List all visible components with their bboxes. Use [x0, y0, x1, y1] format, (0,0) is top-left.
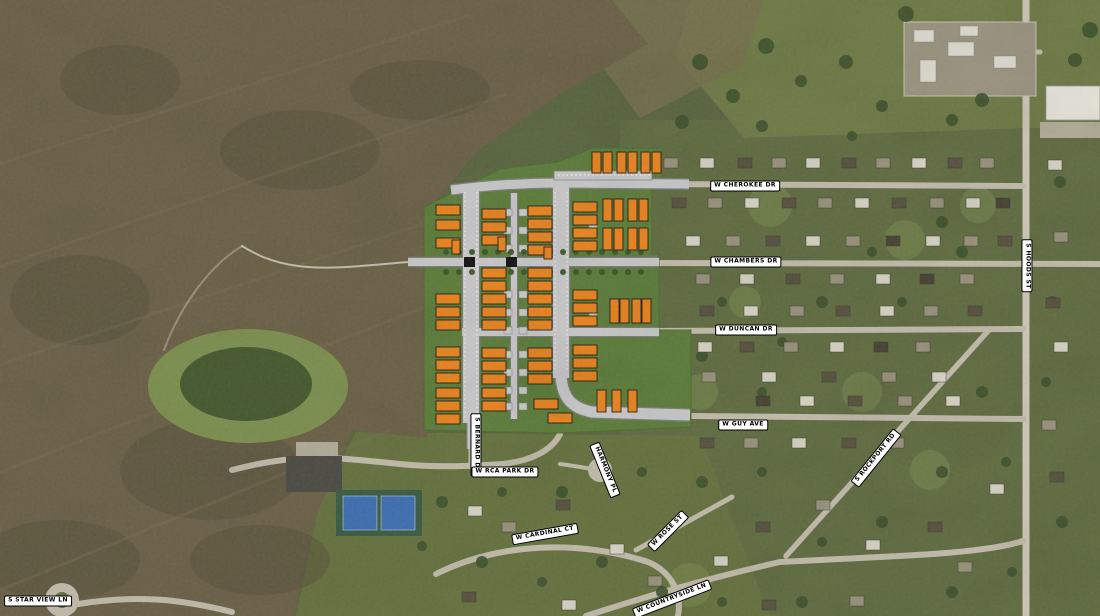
- street-label-w-cardinal-ct: W CARDINAL CT: [511, 523, 579, 545]
- street-label-w-rca-park-dr: W RCA PARK DR: [471, 467, 538, 478]
- street-label-s-star-view-ln: S STAR VIEW LN: [4, 596, 72, 607]
- street-label-s-rockport-rd: S ROCKPORT RD: [850, 428, 901, 488]
- street-label-w-duncan-dr: W DUNCAN DR: [715, 325, 777, 336]
- street-label-w-cherokee-dr: W CHEROKEE DR: [710, 181, 780, 192]
- street-label-w-rose-st: W ROSE ST: [647, 510, 689, 552]
- aerial-map: W CHEROKEE DRW CHAMBERS DRW DUNCAN DRW G…: [0, 0, 1100, 616]
- street-label-harmony-pl: HARMONY PL: [589, 442, 620, 499]
- street-label-w-countryside-ln: W COUNTRYSIDE LN: [632, 579, 712, 616]
- street-label-w-guy-ave: W GUY AVE: [718, 420, 768, 431]
- street-label-w-chambers-dr: W CHAMBERS DR: [710, 257, 781, 268]
- street-label-s-hoods-st: S HOODS ST: [1022, 239, 1033, 292]
- street-labels-layer: W CHEROKEE DRW CHAMBERS DRW DUNCAN DRW G…: [0, 0, 1100, 616]
